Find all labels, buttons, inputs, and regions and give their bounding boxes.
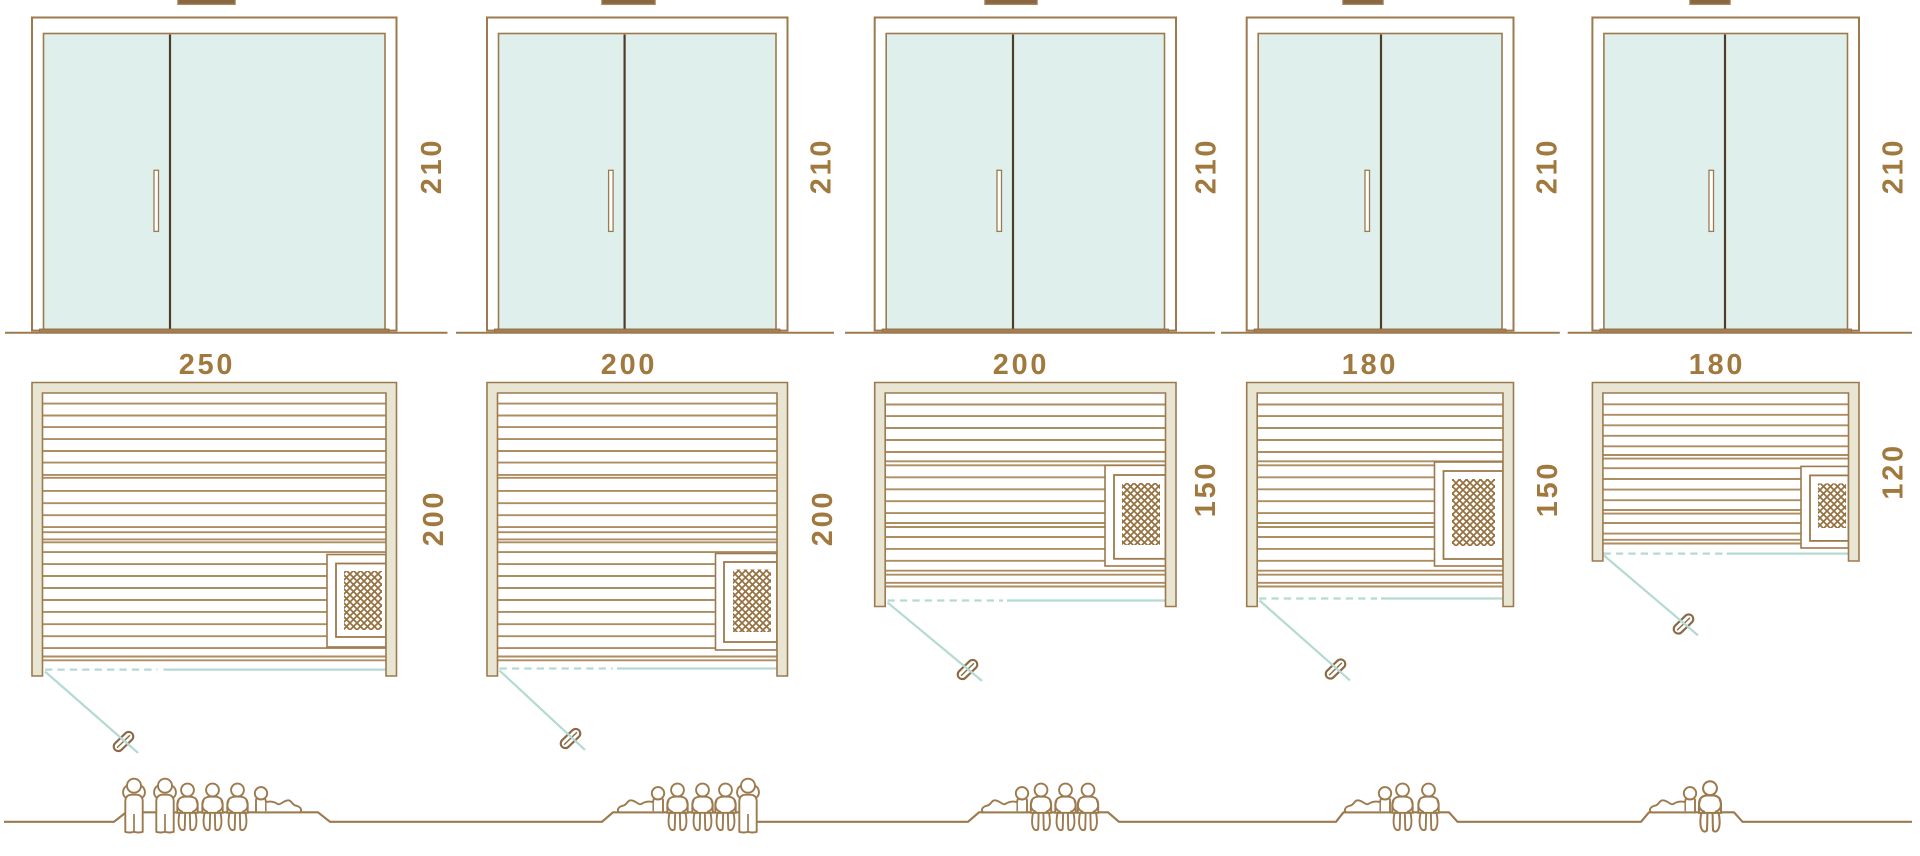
svg-text:210: 210	[1191, 138, 1223, 194]
svg-text:250: 250	[179, 349, 235, 381]
svg-text:200: 200	[993, 349, 1049, 381]
svg-text:210: 210	[416, 138, 448, 194]
svg-text:120: 120	[1878, 443, 1910, 499]
svg-text:180: 180	[1689, 349, 1745, 381]
svg-text:200: 200	[807, 490, 839, 546]
svg-text:180: 180	[1342, 349, 1398, 381]
svg-text:200: 200	[601, 349, 657, 381]
svg-text:150: 150	[1532, 461, 1564, 517]
svg-text:200: 200	[418, 490, 450, 546]
svg-text:210: 210	[1532, 138, 1564, 194]
svg-text:150: 150	[1190, 461, 1222, 517]
svg-text:210: 210	[806, 138, 838, 194]
svg-text:210: 210	[1878, 138, 1910, 194]
